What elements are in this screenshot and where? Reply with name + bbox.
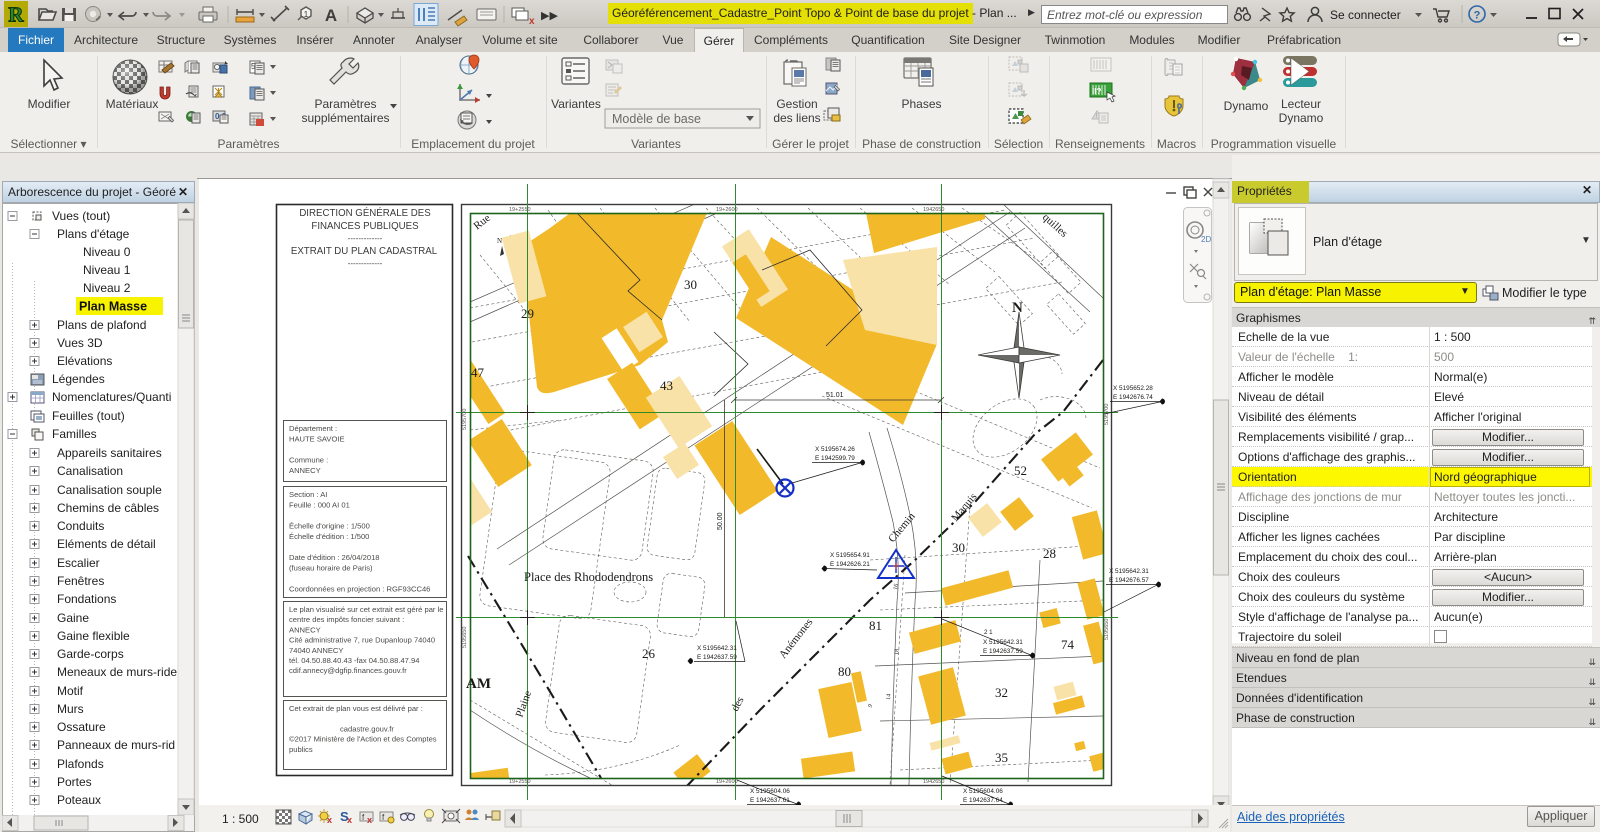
svg-text:E 1942676.74: E 1942676.74 xyxy=(1113,394,1153,401)
svg-text:?: ? xyxy=(1474,10,1481,22)
svg-text:▶▶: ▶▶ xyxy=(541,10,558,22)
svg-text:X 5195642.31: X 5195642.31 xyxy=(697,645,737,652)
svg-text:16: 16 xyxy=(893,583,900,590)
svg-text:E 1942637.64: E 1942637.64 xyxy=(963,797,1003,804)
svg-text:29: 29 xyxy=(521,306,534,321)
svg-text:19+2550: 19+2550 xyxy=(509,207,531,213)
svg-text:x: x xyxy=(347,815,352,825)
svg-text:X 5195642.31: X 5195642.31 xyxy=(983,639,1023,646)
svg-text:-------------: ------------- xyxy=(348,259,383,268)
svg-text:Section : AI: Section : AI xyxy=(289,490,327,499)
svg-text:Échelle d'édition : 1/500: Échelle d'édition : 1/500 xyxy=(289,532,369,541)
svg-text:Cet extrait de plan vous est d: Cet extrait de plan vous est délivré par… xyxy=(289,704,423,713)
svg-text:X 5195642.31: X 5195642.31 xyxy=(1109,568,1149,575)
svg-text:E 1942637.59: E 1942637.59 xyxy=(983,648,1023,655)
svg-text:E 1942637.59: E 1942637.59 xyxy=(697,654,737,661)
svg-text:x: x xyxy=(529,16,535,27)
svg-text:N: N xyxy=(1012,300,1023,316)
svg-text:X 5195654.91: X 5195654.91 xyxy=(830,552,870,559)
svg-text:X 5195674.26: X 5195674.26 xyxy=(815,446,855,453)
svg-text:74040 ANNECY: 74040 ANNECY xyxy=(289,646,343,655)
svg-text:centre des impôts foncier suiv: centre des impôts foncier suivant : xyxy=(289,615,404,624)
svg-text:1: 1 xyxy=(304,10,309,19)
svg-text:19+2550: 19+2550 xyxy=(509,779,531,785)
svg-text:FINANCES PUBLIQUES: FINANCES PUBLIQUES xyxy=(311,221,419,232)
svg-text:E 1942676.57: E 1942676.57 xyxy=(1109,577,1149,584)
svg-text:publics: publics xyxy=(289,745,313,754)
svg-text:HAUTE SAVOIE: HAUTE SAVOIE xyxy=(289,435,345,444)
svg-text:43: 43 xyxy=(660,378,673,393)
svg-text:A: A xyxy=(325,6,337,25)
svg-text:1942650: 1942650 xyxy=(923,779,944,785)
svg-text:2 1: 2 1 xyxy=(984,629,993,636)
svg-text:18: 18 xyxy=(894,649,901,656)
svg-text:5195650: 5195650 xyxy=(462,627,468,648)
svg-text:26: 26 xyxy=(642,646,656,661)
svg-text:1 : 500: 1 : 500 xyxy=(222,812,259,826)
svg-text:19+2600: 19+2600 xyxy=(716,779,738,785)
svg-text:!: ! xyxy=(1096,113,1098,120)
svg-text:X 5195604.06: X 5195604.06 xyxy=(963,788,1003,795)
svg-text:cdif.annecy@dgfip.finances.gou: cdif.annecy@dgfip.finances.gouv.fr xyxy=(289,666,407,675)
svg-text:5195650: 5195650 xyxy=(1104,619,1110,640)
svg-text:5195700: 5195700 xyxy=(1104,404,1110,425)
svg-text:14: 14 xyxy=(886,694,893,701)
svg-text:Place des Rhododendrons: Place des Rhododendrons xyxy=(524,570,653,584)
svg-text:N: N xyxy=(497,237,502,245)
svg-text:32: 32 xyxy=(995,685,1008,700)
svg-text:19+2600: 19+2600 xyxy=(716,207,738,213)
svg-text:50.00: 50.00 xyxy=(717,512,724,530)
svg-text:-------------: ------------- xyxy=(348,234,383,243)
svg-text:80: 80 xyxy=(838,664,851,679)
svg-text:E 1942599.79: E 1942599.79 xyxy=(815,455,855,462)
svg-text:Modèle de base: Modèle de base xyxy=(612,112,701,126)
svg-text:©2017 Ministère de l'Action et: ©2017 Ministère de l'Action et des Compt… xyxy=(289,735,437,744)
svg-text:DIRECTION GÉNÉRALE DES: DIRECTION GÉNÉRALE DES xyxy=(299,208,431,219)
svg-text:Département :: Département : xyxy=(289,424,337,433)
svg-text:ANNECY: ANNECY xyxy=(289,466,321,475)
svg-text:35: 35 xyxy=(995,750,1008,765)
svg-text:52: 52 xyxy=(1014,463,1027,478)
svg-text:X 5195604.06: X 5195604.06 xyxy=(750,788,790,795)
svg-text:Le plan visualisé sur cet extr: Le plan visualisé sur cet extrait est gé… xyxy=(289,605,444,614)
svg-text:Coordonnées en projection : RG: Coordonnées en projection : RGF93CC46 xyxy=(289,585,430,594)
svg-text:E 1942637.61: E 1942637.61 xyxy=(750,797,790,804)
svg-text:II?: II? xyxy=(1092,87,1101,96)
svg-text:tél. 04.50.88.40.43 -fax 04.50: tél. 04.50.88.40.43 -fax 04.50.88.47.94 xyxy=(289,656,419,665)
svg-text:EXTRAIT DU PLAN CADASTRAL: EXTRAIT DU PLAN CADASTRAL xyxy=(291,246,438,257)
svg-text:Échelle d'origine : 1/500: Échelle d'origine : 1/500 xyxy=(289,522,370,531)
svg-text:30: 30 xyxy=(952,540,965,555)
svg-text:X 5195652.28: X 5195652.28 xyxy=(1113,385,1153,392)
svg-text:2D: 2D xyxy=(1201,235,1211,244)
svg-text:51.01: 51.01 xyxy=(826,392,844,399)
svg-text:30: 30 xyxy=(684,277,697,292)
svg-text:Se connecter: Se connecter xyxy=(1330,8,1401,22)
svg-text:Date d'édition : 26/04/2018: Date d'édition : 26/04/2018 xyxy=(289,553,380,562)
svg-text:x: x xyxy=(327,815,332,825)
svg-text:ANNECY: ANNECY xyxy=(289,625,321,634)
svg-text:81: 81 xyxy=(869,618,882,633)
svg-text:74: 74 xyxy=(1061,637,1075,652)
svg-text:E 1942626.21: E 1942626.21 xyxy=(830,561,870,568)
svg-text:Feuille : 000 AI 01: Feuille : 000 AI 01 xyxy=(289,501,350,510)
svg-text:(fuseau horaire de Paris): (fuseau horaire de Paris) xyxy=(289,564,373,573)
svg-text:28: 28 xyxy=(1043,546,1056,561)
svg-text:Cité administrative 7, rue Dup: Cité administrative 7, rue Dupanloup 740… xyxy=(289,636,435,645)
svg-text:1942650: 1942650 xyxy=(923,207,944,213)
svg-text:R: R xyxy=(8,3,24,27)
svg-text:AM: AM xyxy=(466,676,491,692)
svg-text:47: 47 xyxy=(471,365,485,380)
svg-text:cadastre.gouv.fr: cadastre.gouv.fr xyxy=(340,724,394,733)
svg-text:Commune :: Commune : xyxy=(289,456,328,465)
svg-text:5195700: 5195700 xyxy=(462,409,468,430)
svg-text:x: x xyxy=(367,815,372,825)
